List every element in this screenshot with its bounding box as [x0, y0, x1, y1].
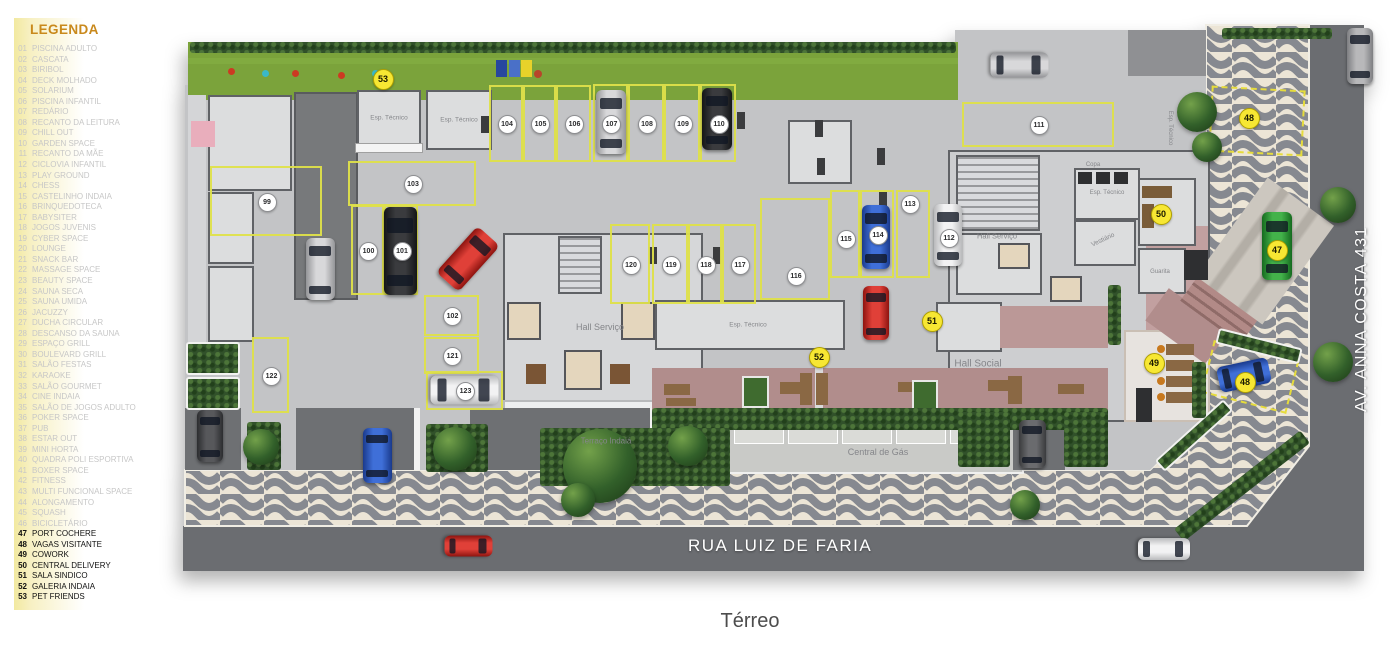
- cowork-chair: [1157, 393, 1165, 401]
- gas-hedge-right: [1064, 412, 1108, 467]
- floor-plan: 9910010110210310410510610710810911011111…: [0, 0, 1400, 650]
- galeria-bench: [800, 373, 812, 405]
- parking-number: 111: [1030, 116, 1049, 135]
- windshield: [1350, 35, 1370, 44]
- windshield: [600, 98, 623, 108]
- room-label: Esp. Técnico: [1167, 111, 1173, 146]
- rear-window: [366, 470, 388, 477]
- windshield: [706, 96, 729, 106]
- tree: [1320, 187, 1356, 223]
- appliance: [1078, 172, 1092, 184]
- room-label: Esp. Técnico: [1090, 190, 1125, 196]
- rear-window: [1143, 541, 1150, 558]
- cowork-chair: [1157, 345, 1165, 353]
- rear-window: [1222, 368, 1233, 389]
- parking-number: 108: [638, 115, 657, 134]
- tree: [1192, 132, 1222, 162]
- parking-number: 100: [359, 242, 378, 261]
- gas-unit: [842, 428, 892, 444]
- pillar: [815, 120, 823, 137]
- cowork-desk: [1166, 344, 1194, 355]
- galeria-bench: [666, 398, 696, 406]
- play-toy: [496, 60, 507, 77]
- parking-number: 121: [443, 347, 462, 366]
- rear-window: [706, 136, 729, 144]
- play-toy: [262, 70, 269, 77]
- legend-marker: 49: [1144, 353, 1165, 374]
- lobby-planter: [1108, 285, 1121, 345]
- parking-number: 115: [837, 230, 856, 249]
- car-red: [436, 226, 500, 292]
- elevator: [1050, 276, 1082, 302]
- windshield: [200, 417, 220, 425]
- car-silver: [990, 53, 1048, 78]
- corner-hedge: [1174, 430, 1310, 541]
- windshield: [1022, 426, 1043, 434]
- tree: [1177, 92, 1217, 132]
- pillar: [737, 112, 745, 129]
- galeria-bench: [780, 382, 802, 394]
- parking-number: 122: [262, 367, 281, 386]
- gas-hedge-left: [958, 412, 1010, 467]
- tree: [1010, 490, 1040, 520]
- cowork-desk: [1166, 360, 1194, 371]
- lawn-hedge-row: [190, 42, 956, 53]
- parking-number: 116: [787, 267, 806, 286]
- tree: [243, 429, 279, 465]
- rear-window: [865, 254, 886, 262]
- galeria-bench: [1008, 376, 1022, 404]
- legend-marker: 48: [1235, 372, 1256, 393]
- pillar: [481, 116, 489, 133]
- rear-window: [1266, 264, 1289, 273]
- curb: [414, 408, 420, 470]
- play-toy: [228, 68, 235, 75]
- rear-window: [200, 450, 220, 457]
- legend-marker: 47: [1267, 240, 1288, 261]
- galeria-bench: [816, 373, 828, 405]
- rear-window: [309, 286, 331, 294]
- play-toy: [509, 60, 520, 77]
- rear-window: [1350, 71, 1370, 78]
- parking-number: 110: [710, 115, 729, 134]
- windshield: [866, 293, 886, 302]
- legend-marker: 53: [373, 69, 394, 90]
- galeria-bench: [1058, 384, 1084, 394]
- parking-number: 119: [662, 256, 681, 275]
- play-toy: [338, 72, 345, 79]
- room-label: Copa: [1086, 162, 1100, 168]
- parking-number: 117: [731, 256, 750, 275]
- parking-number: 109: [674, 115, 693, 134]
- street-name-bottom: RUA LUIZ DE FARIA: [688, 536, 872, 556]
- parking-number: 106: [565, 115, 584, 134]
- stairs-right: [956, 155, 1040, 231]
- car-blue: [363, 428, 392, 483]
- windshield: [1031, 56, 1040, 75]
- room-label: Esp. Técnico: [370, 115, 407, 122]
- car-red: [444, 536, 492, 557]
- rear-window: [443, 264, 465, 285]
- pocket-hedge: [186, 377, 240, 410]
- windshield: [937, 212, 958, 222]
- rear-window: [387, 275, 412, 286]
- parking-number: 99: [258, 193, 277, 212]
- rear-window: [866, 328, 886, 335]
- car-gray: [1347, 28, 1373, 84]
- windshield: [1175, 541, 1183, 558]
- room-label: Hall Serviço: [576, 322, 624, 332]
- delivery-desk: [1142, 186, 1172, 198]
- parking-number: 112: [940, 229, 959, 248]
- pet-pink-tile: [191, 121, 215, 147]
- tree: [433, 427, 477, 471]
- legend-marker: 48: [1239, 108, 1260, 129]
- windshield: [387, 218, 412, 232]
- stairs-center: [558, 236, 602, 294]
- hall-social-carpet: [1000, 306, 1108, 348]
- parking-number: 120: [622, 256, 641, 275]
- windshield: [478, 379, 489, 401]
- cowork-reception: [1136, 388, 1152, 422]
- parking-number: 103: [404, 175, 423, 194]
- room-label: Terraço Indaiá: [581, 437, 632, 446]
- room-label: Guarita: [1150, 269, 1170, 275]
- rear-window: [1022, 457, 1043, 463]
- parking-number: 101: [393, 242, 412, 261]
- windshield: [309, 246, 331, 256]
- pillar: [877, 148, 885, 165]
- room-label: Esp. Técnico: [729, 322, 766, 329]
- room-sindico: [936, 302, 1002, 352]
- parking-number: 114: [869, 226, 888, 245]
- hall-furniture: [526, 364, 546, 384]
- rear-window: [996, 56, 1004, 75]
- elevator: [998, 243, 1030, 269]
- site-plan-page: LEGENDA 01PISCINA ADULTO02CASCATA03BIRIB…: [0, 0, 1400, 650]
- legend-marker: 51: [922, 311, 943, 332]
- play-toy: [292, 70, 299, 77]
- cowork-chair: [1157, 377, 1165, 385]
- cowork-planter: [1192, 362, 1206, 418]
- galeria-planter: [742, 376, 769, 408]
- cowork-desk: [1166, 376, 1194, 387]
- galeria-planter: [912, 380, 938, 411]
- guarita-desk: [1184, 250, 1208, 280]
- room-label: Hall Social: [954, 359, 1001, 370]
- tree: [561, 483, 595, 517]
- parking-number: 102: [443, 307, 462, 326]
- rear-window: [449, 538, 455, 554]
- elevator: [507, 302, 541, 340]
- hall-furniture: [610, 364, 630, 384]
- windshield: [366, 435, 388, 444]
- parking-number: 105: [531, 115, 550, 134]
- gas-unit: [734, 428, 784, 444]
- rear-window: [600, 139, 623, 147]
- legend-marker: 52: [809, 347, 830, 368]
- legend-marker: 50: [1151, 204, 1172, 225]
- tree: [668, 426, 708, 466]
- play-toy: [534, 70, 542, 78]
- parking-number: 118: [697, 256, 716, 275]
- car-red: [863, 286, 889, 340]
- windshield: [865, 213, 886, 223]
- pocket-hedge: [186, 342, 240, 375]
- windshield: [468, 234, 492, 257]
- galeria-bench: [664, 384, 690, 395]
- parking-number: 104: [498, 115, 517, 134]
- cowork-desk: [1166, 392, 1194, 403]
- windshield: [478, 538, 486, 554]
- parking-number: 113: [901, 195, 920, 214]
- car-silver: [306, 238, 335, 300]
- elevator: [621, 302, 655, 340]
- floor-caption: Térreo: [185, 610, 1315, 633]
- car-white: [1138, 538, 1190, 560]
- car-darkgray: [1019, 420, 1046, 468]
- driveway-left-1: [296, 408, 414, 470]
- rear-window: [937, 252, 958, 260]
- parking-number: 123: [456, 382, 475, 401]
- top-right-dark: [1128, 30, 1206, 76]
- gas-unit: [896, 428, 946, 444]
- appliance: [1096, 172, 1110, 184]
- car-darkvan: [197, 410, 223, 462]
- tree: [1313, 342, 1353, 382]
- room-label: Central de Gás: [848, 447, 909, 457]
- appliance: [1114, 172, 1128, 184]
- parking-number: 107: [602, 115, 621, 134]
- street-name-right: AV. ANNA COSTA 431: [1353, 129, 1371, 509]
- room-label: Esp. Técnico: [440, 117, 477, 124]
- rear-window: [437, 379, 446, 401]
- pillar: [817, 158, 825, 175]
- top-right-hedge: [1222, 28, 1332, 39]
- room-left-c: [208, 266, 254, 342]
- gas-unit: [788, 428, 838, 444]
- elevator: [564, 350, 602, 390]
- room-vestiario: [1074, 220, 1136, 266]
- room-label: Hall Serviço: [977, 232, 1017, 241]
- windshield: [1266, 221, 1289, 232]
- vent-grille: [355, 143, 423, 153]
- play-toy: [521, 60, 532, 77]
